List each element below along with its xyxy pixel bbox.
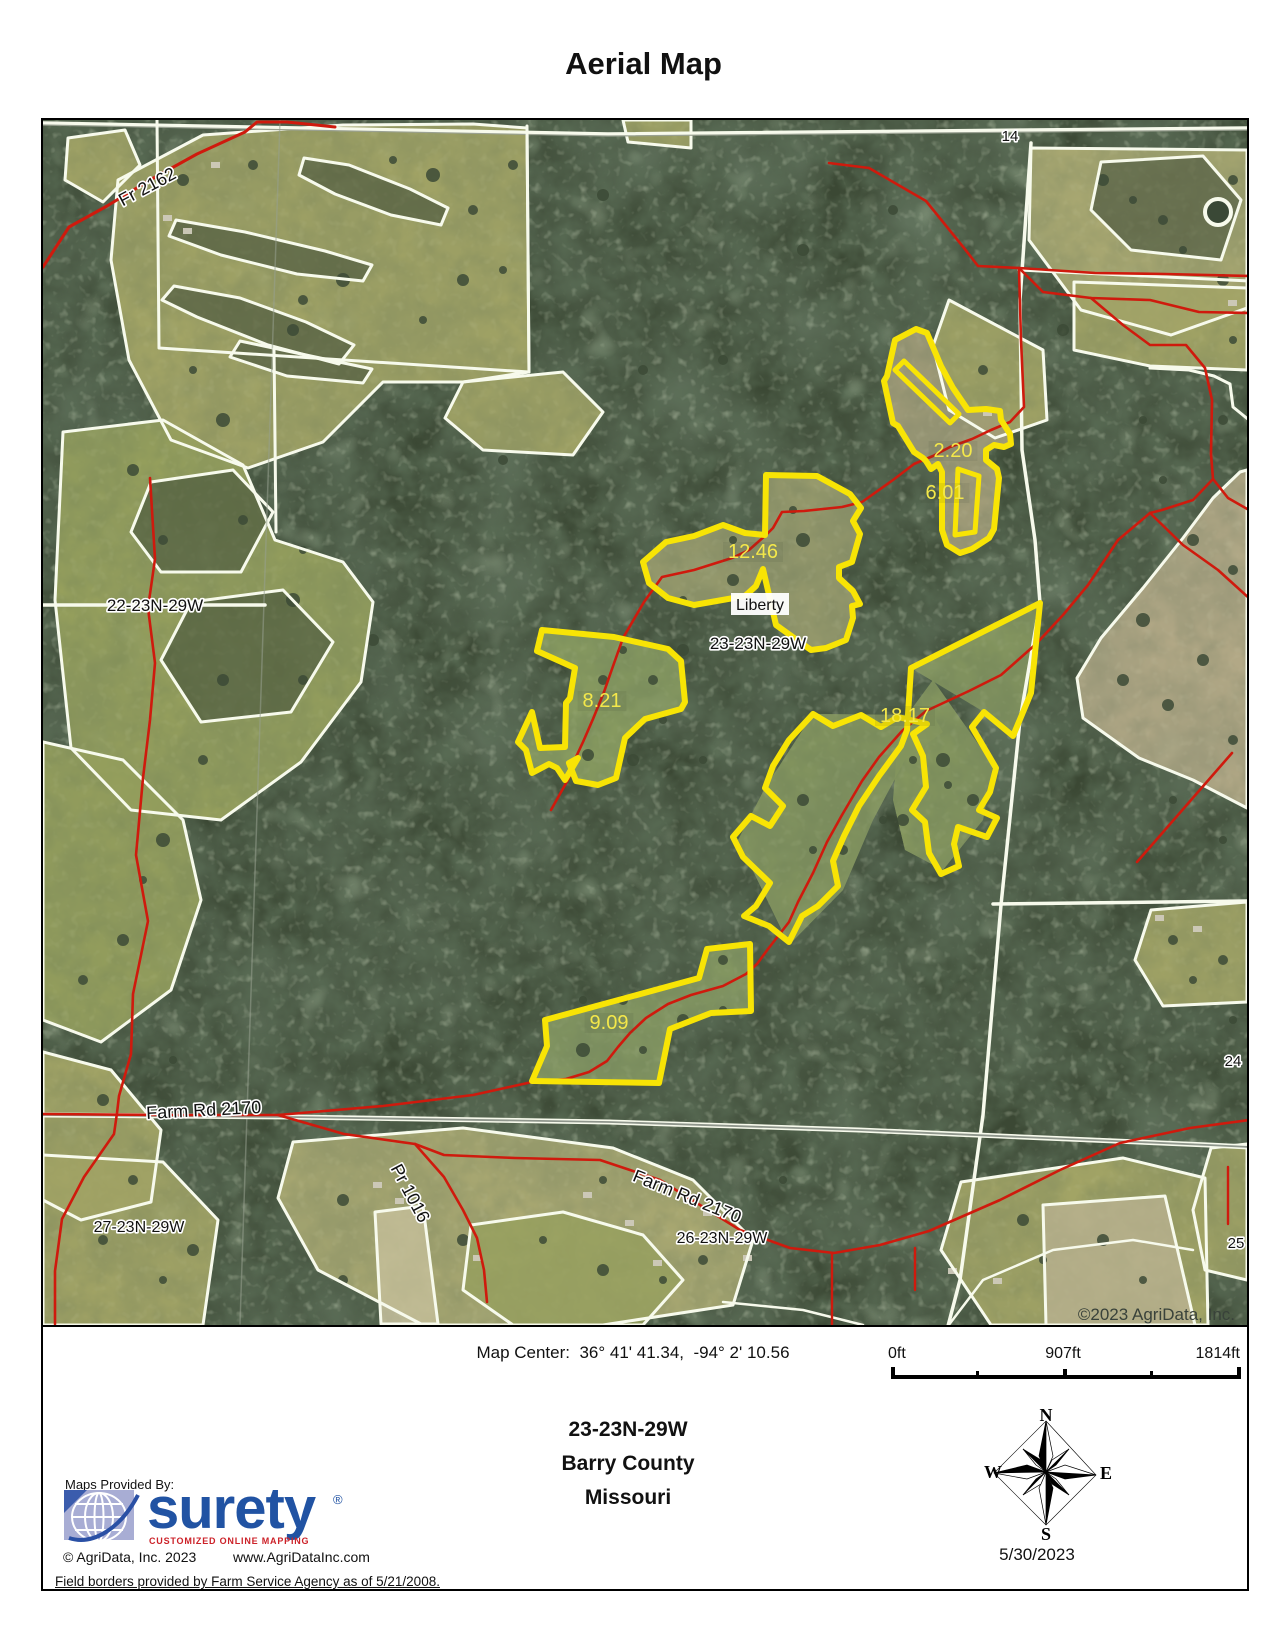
svg-text:9.09: 9.09 bbox=[590, 1012, 629, 1034]
svg-text:E: E bbox=[1100, 1463, 1112, 1483]
svg-text:22-23N-29W: 22-23N-29W bbox=[107, 596, 203, 615]
svg-text:12.46: 12.46 bbox=[728, 541, 778, 563]
svg-text:6.01: 6.01 bbox=[926, 482, 965, 504]
svg-text:2.20: 2.20 bbox=[934, 440, 973, 462]
svg-text:CUSTOMIZED ONLINE MAPPING: CUSTOMIZED ONLINE MAPPING bbox=[149, 1536, 309, 1546]
svg-text:Liberty: Liberty bbox=[736, 597, 784, 614]
svg-text:24: 24 bbox=[1225, 1053, 1242, 1070]
svg-text:14: 14 bbox=[1002, 128, 1019, 145]
svg-text:®: ® bbox=[333, 1492, 343, 1507]
svg-text:S: S bbox=[1041, 1524, 1051, 1544]
svg-text:surety: surety bbox=[147, 1490, 316, 1541]
svg-text:18.17: 18.17 bbox=[880, 705, 930, 727]
svg-text:©2023 AgriData, Inc.: ©2023 AgriData, Inc. bbox=[1078, 1305, 1235, 1324]
svg-text:27-23N-29W: 27-23N-29W bbox=[94, 1219, 186, 1236]
svg-text:25: 25 bbox=[1228, 1235, 1245, 1252]
svg-text:26-23N-29W: 26-23N-29W bbox=[677, 1230, 769, 1247]
svg-text:23-23N-29W: 23-23N-29W bbox=[710, 634, 806, 653]
svg-text:8.21: 8.21 bbox=[583, 690, 622, 712]
